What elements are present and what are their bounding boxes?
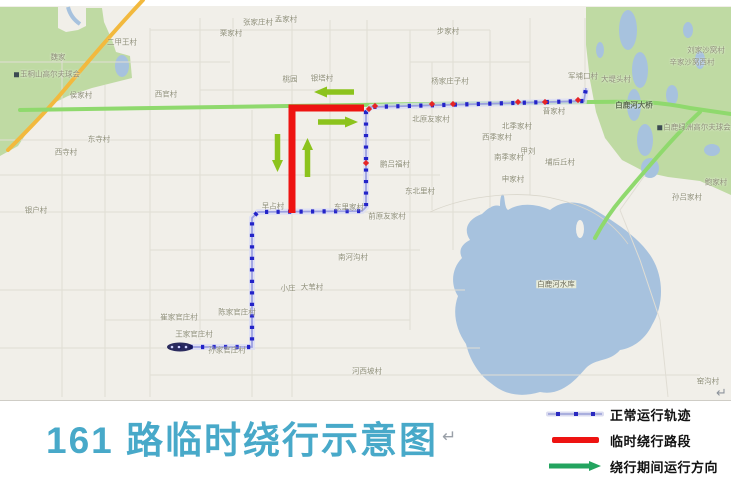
map-label: 王家官庄村	[175, 330, 213, 338]
map-label: 晋家村	[543, 107, 566, 115]
map-label: 辛家沙窝西村	[670, 58, 715, 66]
legend-label: 绕行期间运行方向	[610, 457, 718, 476]
map-label: 前原友家村	[368, 212, 406, 220]
legend-row-normal-track: 正常运行轨迹	[545, 401, 731, 427]
legend-label: 正常运行轨迹	[610, 405, 691, 424]
paragraph-mark: ↵	[442, 427, 456, 447]
map-tile-edge	[0, 0, 731, 6]
legend-row-detour-direction: 绕行期间运行方向	[545, 453, 731, 479]
map-label: 南季家村	[494, 153, 524, 161]
detour-segment-sample-icon	[545, 437, 605, 443]
map-image	[0, 0, 731, 400]
page-title: 161 路临时绕行示意图	[46, 410, 438, 464]
map-label: 桃园	[283, 75, 298, 83]
direction-arrows	[272, 87, 358, 178]
map-label: 大堤头村	[601, 75, 631, 83]
map-label: 西官村	[155, 90, 178, 98]
map-label: 北原友家村	[412, 115, 450, 123]
map-label: 二甲王村	[107, 38, 137, 46]
map-label: 窑沟村	[697, 377, 720, 385]
map-label: 东里家村	[334, 203, 364, 211]
map-label: 白鹿绿洲高尔夫球会	[657, 123, 731, 131]
map-label: 西寺村	[55, 148, 78, 156]
detour-direction-arrow-icon	[545, 460, 605, 472]
map-label: 南河沟村	[338, 253, 368, 261]
map-label: 北季家村	[502, 122, 532, 130]
map-label: 侯家村	[70, 91, 93, 99]
map-label: 白鹿河水库	[536, 280, 576, 288]
map-label: 埔后丘村	[545, 158, 575, 166]
legend-row-detour-segment: 临时绕行路段	[545, 427, 731, 453]
map-label: 鲍家村	[705, 178, 728, 186]
map-label: 孙吕家村	[672, 193, 702, 201]
map-label: 银户村	[25, 206, 48, 214]
map-label: 东北里村	[405, 187, 435, 195]
map-label: 东寺村	[88, 135, 111, 143]
map-label: 魏家	[51, 53, 66, 61]
map-label: 小庄	[281, 284, 296, 292]
map-label: 玉桐山高尔夫球会	[14, 70, 80, 78]
map-label: 刘家沙窝村	[687, 46, 725, 54]
map-canvas: 二甲王村魏家玉桐山高尔夫球会侯家村西官村栗家村张家庄村孟家村步家村桃园银塔村杨家…	[0, 0, 731, 401]
paragraph-mark: ↵	[716, 385, 727, 401]
map-label: 申家村	[502, 175, 525, 183]
map-label: 银塔村	[311, 74, 334, 82]
map-label: 陈家官庄村	[218, 308, 256, 316]
map-label: 孙家官庄村	[208, 346, 246, 354]
screenshot-root: 二甲王村魏家玉桐山高尔夫球会侯家村西官村栗家村张家庄村孟家村步家村桃园银塔村杨家…	[0, 0, 731, 484]
map-label: 军埔口村	[568, 72, 598, 80]
title-row: 161 路临时绕行示意图 ↵	[46, 410, 456, 464]
legend-label: 临时绕行路段	[610, 431, 691, 450]
map-label: 孟家村	[275, 15, 298, 23]
poi-icon	[657, 125, 662, 130]
map-label: 鹏吕福村	[380, 160, 410, 168]
poi-icon	[14, 72, 19, 77]
map-label: 栗家村	[220, 29, 243, 37]
map-label: 崔家官庄村	[160, 313, 198, 321]
map-label: 白鹿河大桥	[615, 101, 653, 109]
map-label: 大苇村	[301, 283, 324, 291]
reservoir	[453, 194, 661, 394]
map-label: 西季家村	[482, 133, 512, 141]
map-legend: 正常运行轨迹 临时绕行路段 绕行期间运行方向	[545, 401, 731, 479]
map-label: 杨家庄子村	[431, 77, 469, 85]
map-label: 早占村	[262, 202, 285, 210]
normal-track-sample-icon	[545, 408, 605, 420]
map-label: 河西坡村	[352, 367, 382, 375]
map-label: 张家庄村	[243, 18, 273, 26]
map-label: 步家村	[437, 27, 460, 35]
route-terminal	[167, 343, 193, 352]
